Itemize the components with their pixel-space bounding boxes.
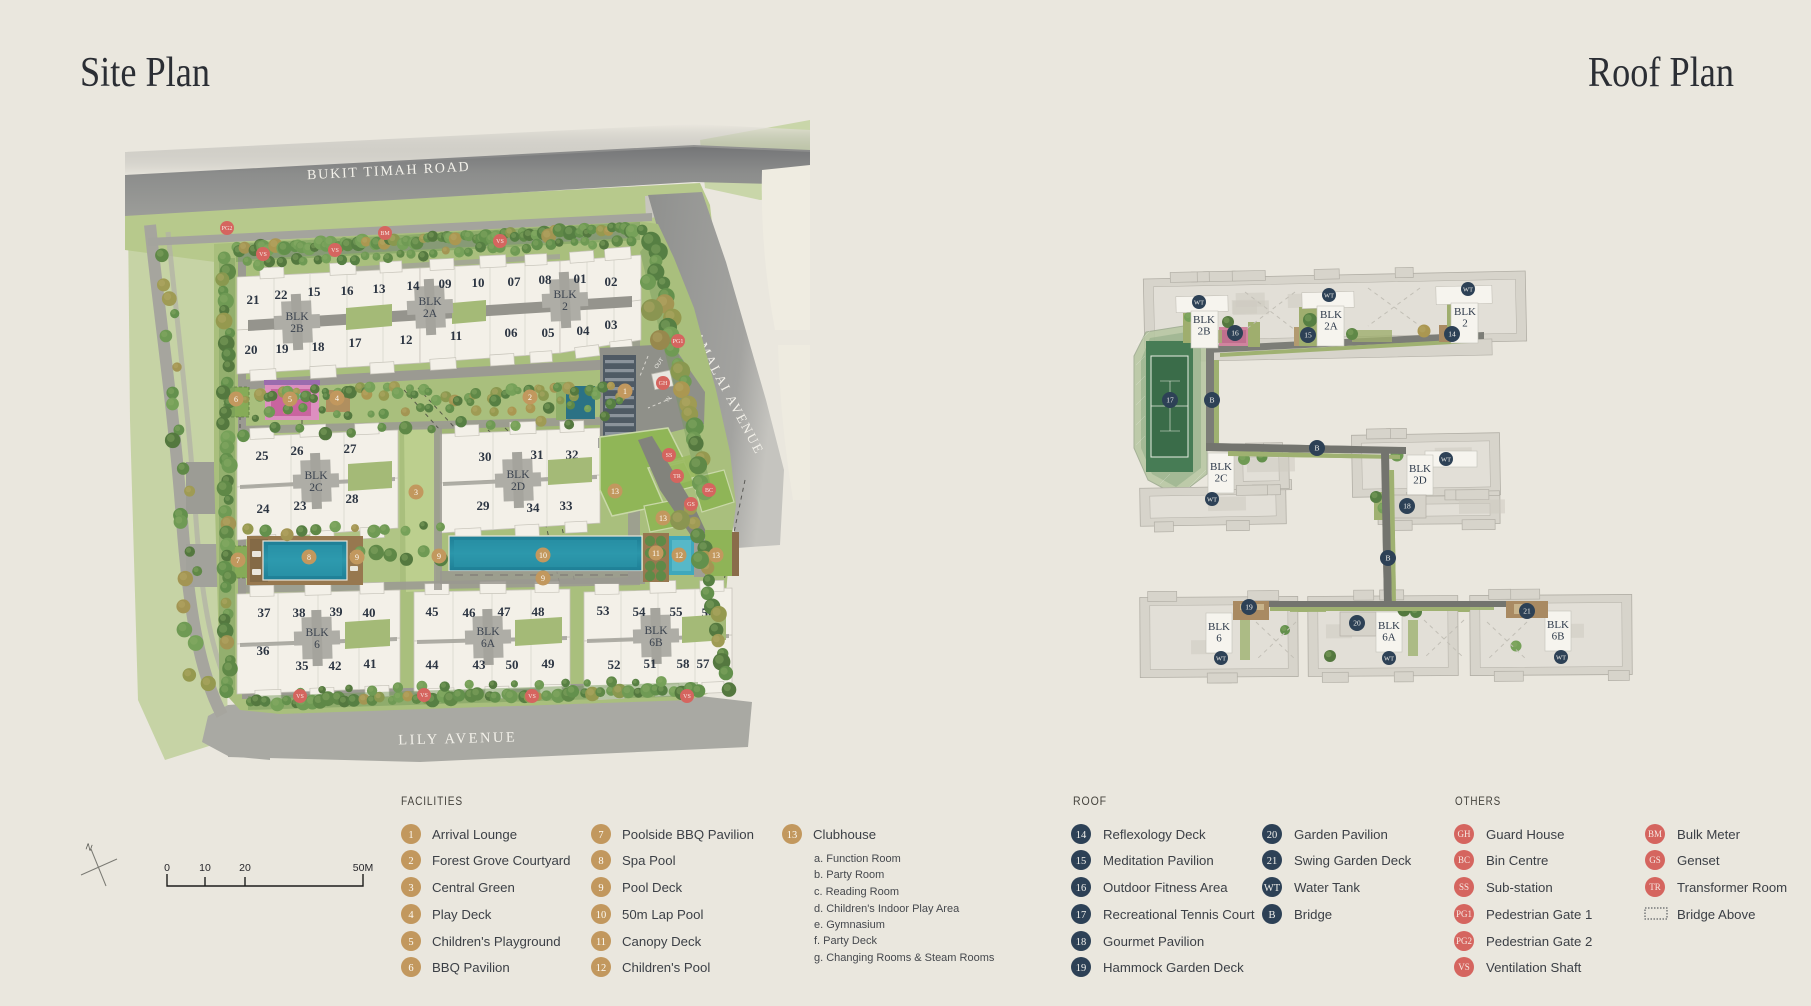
svg-text:WT: WT <box>1207 496 1217 503</box>
svg-text:10: 10 <box>539 551 547 560</box>
svg-text:Forest Grove Courtyard: Forest Grove Courtyard <box>432 853 571 868</box>
svg-text:8: 8 <box>307 553 311 562</box>
svg-text:2C: 2C <box>309 482 323 494</box>
svg-text:48: 48 <box>532 604 546 619</box>
svg-text:24: 24 <box>257 501 271 516</box>
svg-text:51: 51 <box>644 656 657 671</box>
svg-text:BLK: BLK <box>419 296 443 308</box>
svg-text:16: 16 <box>1231 329 1239 338</box>
svg-text:7: 7 <box>598 830 603 841</box>
svg-text:21: 21 <box>1523 607 1531 616</box>
svg-text:43: 43 <box>473 657 487 672</box>
svg-text:2D: 2D <box>1413 475 1427 487</box>
svg-text:38: 38 <box>293 605 307 620</box>
svg-text:5: 5 <box>408 937 413 948</box>
svg-text:20: 20 <box>245 342 258 357</box>
svg-text:1: 1 <box>623 387 627 396</box>
svg-text:2B: 2B <box>290 323 304 335</box>
svg-text:Garden Pavilion: Garden Pavilion <box>1294 827 1388 842</box>
svg-text:54: 54 <box>633 604 647 619</box>
svg-text:4: 4 <box>335 394 339 403</box>
svg-text:14: 14 <box>1448 330 1456 339</box>
svg-text:18: 18 <box>1076 937 1087 948</box>
svg-text:07: 07 <box>508 274 522 289</box>
svg-text:09: 09 <box>439 276 453 291</box>
svg-text:57: 57 <box>697 656 711 671</box>
svg-text:19: 19 <box>276 341 290 356</box>
svg-text:b. Party Room: b. Party Room <box>814 869 884 881</box>
svg-text:2: 2 <box>1462 318 1468 330</box>
svg-text:WT: WT <box>1556 654 1566 661</box>
svg-text:a. Function Room: a. Function Room <box>814 853 901 865</box>
svg-text:2B: 2B <box>1198 326 1211 338</box>
svg-text:11: 11 <box>596 937 606 948</box>
svg-text:BM: BM <box>380 231 390 237</box>
svg-text:11: 11 <box>450 328 462 343</box>
svg-text:15: 15 <box>1304 331 1312 340</box>
svg-text:BLK: BLK <box>645 625 669 637</box>
svg-text:6B: 6B <box>1552 631 1565 643</box>
svg-text:27: 27 <box>344 441 358 456</box>
svg-text:20: 20 <box>1267 830 1278 841</box>
svg-text:WT: WT <box>1384 655 1394 662</box>
svg-text:g. Changing Rooms & Steam Room: g. Changing Rooms & Steam Rooms <box>814 952 995 964</box>
svg-text:WT: WT <box>1324 292 1334 299</box>
svg-text:Roof Plan: Roof Plan <box>1588 50 1734 96</box>
svg-text:08: 08 <box>539 272 553 287</box>
svg-text:8: 8 <box>598 856 603 867</box>
svg-text:Water Tank: Water Tank <box>1294 880 1360 895</box>
svg-text:WT: WT <box>1441 456 1451 463</box>
svg-text:BLK: BLK <box>1547 619 1569 631</box>
svg-text:10: 10 <box>472 275 485 290</box>
svg-text:BLK: BLK <box>1409 463 1431 475</box>
svg-text:2C: 2C <box>1215 473 1228 485</box>
svg-text:37: 37 <box>258 605 272 620</box>
svg-text:BLK: BLK <box>1378 620 1400 632</box>
svg-text:Poolside BBQ Pavilion: Poolside BBQ Pavilion <box>622 827 754 842</box>
svg-text:BC: BC <box>705 488 713 494</box>
svg-text:Pedestrian Gate 1: Pedestrian Gate 1 <box>1486 907 1592 922</box>
svg-text:36: 36 <box>257 643 271 658</box>
svg-text:41: 41 <box>364 656 377 671</box>
svg-text:VS: VS <box>420 693 428 699</box>
svg-text:Meditation Pavilion: Meditation Pavilion <box>1103 853 1214 868</box>
svg-text:Bin Centre: Bin Centre <box>1486 853 1548 868</box>
svg-text:VS: VS <box>259 252 267 258</box>
svg-text:Outdoor Fitness Area: Outdoor Fitness Area <box>1103 880 1228 895</box>
svg-text:04: 04 <box>577 323 591 338</box>
svg-text:TR: TR <box>673 474 681 480</box>
svg-text:06: 06 <box>505 325 519 340</box>
svg-text:BLK: BLK <box>1320 309 1342 321</box>
svg-text:6: 6 <box>234 395 238 404</box>
svg-text:6: 6 <box>408 963 413 974</box>
svg-text:5: 5 <box>288 395 292 404</box>
svg-text:Swing Garden Deck: Swing Garden Deck <box>1294 853 1412 868</box>
svg-text:21: 21 <box>247 292 260 307</box>
svg-text:2: 2 <box>562 301 568 313</box>
svg-text:0: 0 <box>164 862 170 874</box>
svg-text:VS: VS <box>296 694 304 700</box>
svg-text:PG1: PG1 <box>673 339 684 345</box>
svg-text:10: 10 <box>596 910 607 921</box>
svg-text:VS: VS <box>528 694 536 700</box>
svg-text:2A: 2A <box>423 308 438 320</box>
svg-text:13: 13 <box>712 551 720 560</box>
svg-text:Bulk Meter: Bulk Meter <box>1677 827 1741 842</box>
svg-text:PG2: PG2 <box>1456 936 1472 946</box>
svg-text:B: B <box>1314 444 1319 453</box>
svg-text:BLK: BLK <box>305 470 329 482</box>
svg-text:7: 7 <box>236 556 240 565</box>
svg-text:WT: WT <box>1463 286 1473 293</box>
svg-text:50m Lap Pool: 50m Lap Pool <box>622 907 703 922</box>
svg-text:Children's Pool: Children's Pool <box>622 960 710 975</box>
svg-text:GS: GS <box>687 502 695 508</box>
svg-text:Play Deck: Play Deck <box>432 907 492 922</box>
svg-text:Spa Pool: Spa Pool <box>622 853 676 868</box>
svg-text:03: 03 <box>605 317 619 332</box>
svg-text:TR: TR <box>1649 882 1661 892</box>
svg-text:19: 19 <box>1076 963 1087 974</box>
svg-text:Reflexology Deck: Reflexology Deck <box>1103 827 1206 842</box>
svg-text:34: 34 <box>527 500 541 515</box>
svg-text:13: 13 <box>659 514 667 523</box>
svg-text:4: 4 <box>408 910 414 921</box>
svg-text:42: 42 <box>329 658 342 673</box>
svg-text:01: 01 <box>574 271 587 286</box>
svg-text:Children's Playground: Children's Playground <box>432 934 561 949</box>
svg-text:VS: VS <box>683 694 691 700</box>
svg-text:BLK: BLK <box>306 627 330 639</box>
svg-text:Pool Deck: Pool Deck <box>622 880 683 895</box>
svg-text:BM: BM <box>1648 829 1662 839</box>
svg-text:12: 12 <box>596 963 607 974</box>
svg-text:VS: VS <box>331 248 339 254</box>
svg-text:BLK: BLK <box>1454 306 1476 318</box>
svg-text:2: 2 <box>408 856 413 867</box>
svg-text:Site Plan: Site Plan <box>80 50 210 96</box>
svg-text:28: 28 <box>346 491 360 506</box>
svg-text:47: 47 <box>498 604 512 619</box>
svg-text:45: 45 <box>426 604 440 619</box>
svg-text:Bridge: Bridge <box>1294 907 1332 922</box>
svg-text:2: 2 <box>528 393 532 402</box>
svg-text:52: 52 <box>608 657 621 672</box>
svg-text:26: 26 <box>291 443 305 458</box>
svg-text:B: B <box>1268 910 1275 921</box>
svg-text:05: 05 <box>542 325 556 340</box>
svg-text:LILY AVENUE: LILY AVENUE <box>398 729 517 748</box>
svg-text:9: 9 <box>437 552 441 561</box>
svg-text:20: 20 <box>1353 619 1361 628</box>
svg-text:GS: GS <box>1649 855 1661 865</box>
svg-text:Clubhouse: Clubhouse <box>813 827 876 842</box>
svg-text:29: 29 <box>477 498 491 513</box>
svg-text:Bridge Above: Bridge Above <box>1677 907 1755 922</box>
svg-text:14: 14 <box>1076 830 1087 841</box>
svg-text:11: 11 <box>652 549 660 558</box>
svg-text:c. Reading Room: c. Reading Room <box>814 886 899 898</box>
svg-text:6: 6 <box>1216 633 1222 645</box>
svg-text:Ventilation Shaft: Ventilation Shaft <box>1486 960 1582 975</box>
svg-text:Genset: Genset <box>1677 853 1720 868</box>
svg-text:Hammock Garden Deck: Hammock Garden Deck <box>1103 960 1244 975</box>
svg-text:13: 13 <box>787 830 798 841</box>
svg-text:BLK: BLK <box>507 469 531 481</box>
svg-text:46: 46 <box>463 605 477 620</box>
svg-text:GH: GH <box>1458 829 1471 839</box>
svg-text:9: 9 <box>598 883 603 894</box>
svg-text:ROOF: ROOF <box>1073 794 1107 808</box>
svg-text:17: 17 <box>1166 396 1174 405</box>
svg-text:Recreational Tennis Court: Recreational Tennis Court <box>1103 907 1255 922</box>
svg-text:20: 20 <box>239 862 251 874</box>
svg-text:18: 18 <box>1403 502 1411 511</box>
svg-text:2D: 2D <box>511 481 525 493</box>
svg-text:B: B <box>1209 396 1214 405</box>
svg-text:BLK: BLK <box>1193 314 1215 326</box>
svg-text:12: 12 <box>675 551 683 560</box>
svg-text:f. Party Deck: f. Party Deck <box>814 935 877 947</box>
svg-text:12: 12 <box>400 332 413 347</box>
svg-text:9: 9 <box>355 553 359 562</box>
svg-text:WT: WT <box>1194 299 1204 306</box>
svg-text:13: 13 <box>611 487 619 496</box>
svg-text:30: 30 <box>479 449 492 464</box>
svg-text:WT: WT <box>1264 883 1281 894</box>
svg-text:35: 35 <box>296 658 310 673</box>
svg-text:25: 25 <box>256 448 270 463</box>
svg-text:22: 22 <box>275 287 288 302</box>
svg-text:19: 19 <box>1245 603 1253 612</box>
svg-text:BBQ Pavilion: BBQ Pavilion <box>432 960 510 975</box>
svg-text:Arrival Lounge: Arrival Lounge <box>432 827 517 842</box>
svg-text:e. Gymnasium: e. Gymnasium <box>814 919 885 931</box>
svg-text:18: 18 <box>312 339 326 354</box>
svg-text:17: 17 <box>1076 910 1087 921</box>
svg-text:40: 40 <box>363 605 376 620</box>
svg-text:BLK: BLK <box>554 289 578 301</box>
svg-text:10: 10 <box>199 862 211 874</box>
svg-text:44: 44 <box>426 657 440 672</box>
svg-text:23: 23 <box>294 498 308 513</box>
svg-text:50: 50 <box>506 657 519 672</box>
svg-text:WT: WT <box>1216 655 1226 662</box>
svg-text:39: 39 <box>330 604 344 619</box>
svg-text:B: B <box>1385 554 1390 563</box>
svg-text:BLK: BLK <box>286 311 310 323</box>
svg-text:OTHERS: OTHERS <box>1455 794 1501 808</box>
svg-text:14: 14 <box>407 278 421 293</box>
svg-text:55: 55 <box>670 604 684 619</box>
svg-text:BLK: BLK <box>1210 461 1232 473</box>
svg-text:50M: 50M <box>353 862 373 874</box>
svg-text:15: 15 <box>308 284 322 299</box>
svg-text:Guard House: Guard House <box>1486 827 1564 842</box>
svg-text:21: 21 <box>1267 856 1278 867</box>
svg-text:17: 17 <box>349 335 363 350</box>
svg-text:d. Children's Indoor Play Area: d. Children's Indoor Play Area <box>814 903 960 915</box>
svg-text:6: 6 <box>314 639 320 651</box>
svg-text:VS: VS <box>496 239 504 245</box>
svg-text:1: 1 <box>408 830 413 841</box>
svg-text:6A: 6A <box>1382 632 1396 644</box>
svg-text:SS: SS <box>666 453 673 459</box>
svg-text:9: 9 <box>541 574 545 583</box>
svg-text:BLK: BLK <box>477 626 501 638</box>
svg-text:16: 16 <box>1076 883 1087 894</box>
svg-text:SS: SS <box>1459 882 1469 892</box>
svg-text:3: 3 <box>408 883 413 894</box>
svg-text:15: 15 <box>1076 856 1087 867</box>
svg-text:02: 02 <box>605 274 618 289</box>
svg-text:Gourmet Pavilion: Gourmet Pavilion <box>1103 934 1204 949</box>
svg-text:BC: BC <box>1458 855 1470 865</box>
svg-text:6A: 6A <box>481 638 496 650</box>
svg-text:FACILITIES: FACILITIES <box>401 794 463 808</box>
svg-text:PG1: PG1 <box>1456 909 1472 919</box>
svg-text:16: 16 <box>341 283 355 298</box>
svg-text:58: 58 <box>677 656 691 671</box>
svg-text:33: 33 <box>560 498 574 513</box>
svg-text:Transformer Room: Transformer Room <box>1677 880 1787 895</box>
svg-text:6B: 6B <box>649 637 663 649</box>
svg-text:53: 53 <box>597 603 611 618</box>
svg-text:13: 13 <box>373 281 387 296</box>
svg-text:PG2: PG2 <box>222 226 233 232</box>
svg-text:Sub-station: Sub-station <box>1486 880 1553 895</box>
svg-text:BLK: BLK <box>1208 621 1230 633</box>
svg-text:49: 49 <box>542 656 556 671</box>
svg-text:VS: VS <box>1458 962 1470 972</box>
svg-text:3: 3 <box>414 488 418 497</box>
svg-text:Central Green: Central Green <box>432 880 515 895</box>
svg-text:Canopy Deck: Canopy Deck <box>622 934 702 949</box>
svg-text:GH: GH <box>659 381 668 387</box>
svg-text:31: 31 <box>531 447 544 462</box>
svg-text:2A: 2A <box>1324 321 1338 333</box>
svg-text:Pedestrian Gate 2: Pedestrian Gate 2 <box>1486 934 1592 949</box>
